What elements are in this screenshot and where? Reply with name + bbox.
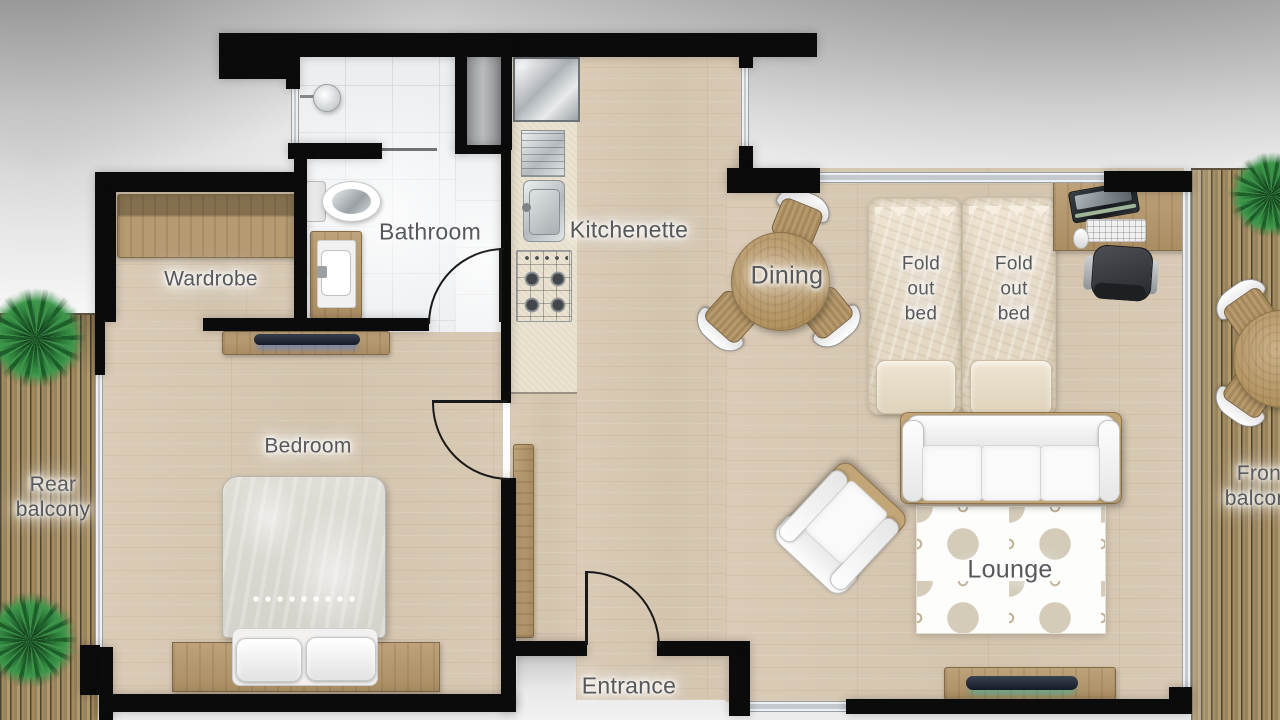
sofa-arm-right xyxy=(1098,420,1120,502)
label-line: Front xyxy=(1225,462,1280,487)
wall-segment xyxy=(80,645,100,695)
wall-segment xyxy=(286,79,300,89)
room-label-front-balcony: Front balcony xyxy=(1225,462,1280,512)
front-balcony-glass-door xyxy=(1182,192,1191,689)
fold-bed-cushion-right xyxy=(970,360,1052,415)
wall-segment xyxy=(1104,171,1192,192)
sink-faucet xyxy=(522,203,531,212)
wall-segment xyxy=(729,656,750,716)
kitchen-sink xyxy=(523,180,565,242)
room-label-lounge: Lounge xyxy=(967,555,1052,585)
wall-segment xyxy=(657,641,750,656)
sofa-cushion xyxy=(1040,445,1100,501)
wall-segment xyxy=(95,322,105,375)
wall-segment xyxy=(455,145,505,154)
room-label-rear-balcony: Rear balcony xyxy=(16,473,90,523)
wall-segment xyxy=(501,38,512,150)
wall-segment xyxy=(294,159,307,322)
bedroom-door-leaf xyxy=(432,400,507,403)
gas-hob xyxy=(516,250,572,322)
room-label-wardrobe: Wardrobe xyxy=(164,268,258,293)
sofa-arm-left xyxy=(902,420,924,502)
fridge xyxy=(513,57,580,122)
wall-segment xyxy=(219,33,817,57)
sofa-cushion xyxy=(922,445,983,501)
living-room-window xyxy=(818,172,1106,183)
bed-pillow-right xyxy=(306,637,376,681)
label-fold-out-bed-right: Fold out bed xyxy=(995,251,1033,326)
label-line: Fold xyxy=(995,251,1033,276)
wall-segment xyxy=(288,143,382,159)
wall-segment xyxy=(1169,687,1192,699)
wall-segment xyxy=(95,192,116,322)
wall-segment xyxy=(727,168,820,193)
keyboard xyxy=(1086,219,1146,242)
front-balcony-deck xyxy=(1191,168,1280,720)
label-line: out xyxy=(902,276,940,301)
fold-out-bed-fold xyxy=(969,206,1049,222)
office-chair xyxy=(1082,241,1160,306)
wall-segment xyxy=(219,57,300,79)
bed-pillow-left xyxy=(236,638,302,682)
room-label-entrance: Entrance xyxy=(582,672,676,699)
floor-plan: Wardrobe Bathroom Kitchenette Dining Bed… xyxy=(0,0,1280,720)
label-line: bed xyxy=(902,302,940,327)
wardrobe-shelf xyxy=(117,194,299,258)
dining-bay-window xyxy=(741,66,749,148)
label-line: bed xyxy=(995,302,1033,327)
fold-bed-cushion-left xyxy=(876,360,956,414)
rear-balcony-glass-door xyxy=(95,373,103,647)
sofa-cushion xyxy=(981,445,1042,501)
label-line: Rear xyxy=(16,473,90,498)
entrance-door-leaf xyxy=(585,571,588,645)
bedroom-tv xyxy=(254,334,360,345)
room-label-bathroom: Bathroom xyxy=(379,218,481,245)
wall-segment xyxy=(739,57,753,68)
bathroom-vanity xyxy=(310,231,362,319)
wall-segment xyxy=(501,478,516,712)
sink-drainer xyxy=(521,130,565,177)
room-label-bedroom: Bedroom xyxy=(264,435,351,460)
wall-segment xyxy=(99,694,516,712)
wall-segment xyxy=(203,318,429,331)
label-fold-out-bed-left: Fold out bed xyxy=(902,251,940,326)
vanity-faucet xyxy=(317,266,327,278)
bathroom-partition-rail xyxy=(382,148,437,151)
wall-segment xyxy=(95,172,295,192)
lounge-low-window xyxy=(748,701,848,712)
hob-controls xyxy=(522,255,568,261)
toilet-bowl xyxy=(322,181,381,222)
wall-segment xyxy=(846,699,1192,714)
sink-basin xyxy=(529,189,560,235)
label-line: balcony xyxy=(16,498,90,523)
double-bed xyxy=(222,476,386,690)
hall-cabinet xyxy=(513,444,534,638)
bed-duvet xyxy=(222,476,386,638)
fold-out-bed-fold xyxy=(875,207,955,223)
toilet-bowl-inner xyxy=(332,189,371,214)
office-chair-back xyxy=(1093,282,1146,302)
lounge-tv xyxy=(966,676,1078,690)
sofa xyxy=(900,412,1120,506)
label-line: balcony xyxy=(1225,487,1280,512)
label-line: Fold xyxy=(902,251,940,276)
label-line: out xyxy=(995,276,1033,301)
room-label-dining: Dining xyxy=(751,261,824,291)
shower-head xyxy=(313,84,341,112)
bed-lace-trim xyxy=(250,594,360,606)
wall-segment xyxy=(514,641,587,656)
bathroom-door-leaf xyxy=(499,248,502,322)
wall-segment xyxy=(455,38,467,152)
room-label-kitchenette: Kitchenette xyxy=(570,216,688,243)
